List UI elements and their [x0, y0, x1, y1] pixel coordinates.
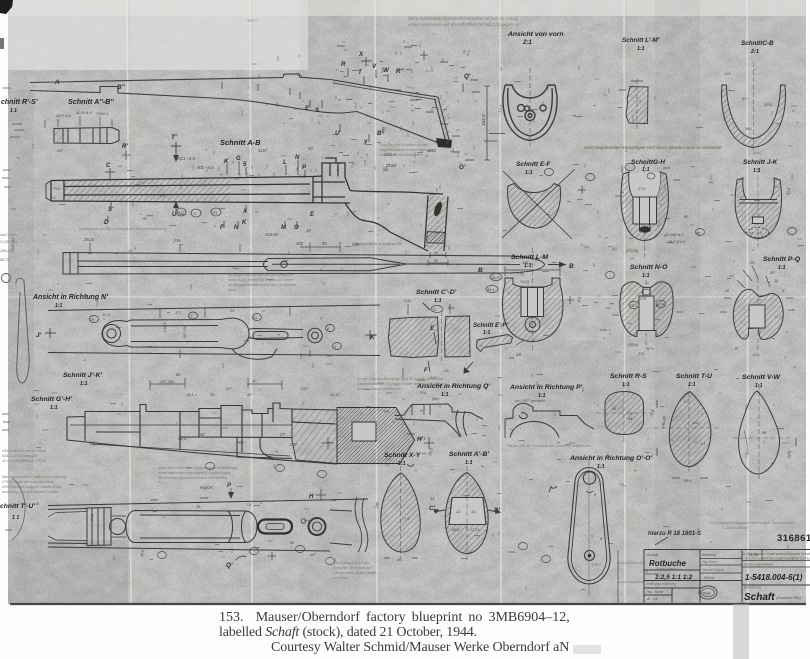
svg-text:(8,75: (8,75	[656, 303, 666, 307]
svg-text:,7,5): ,7,5)	[516, 272, 524, 276]
svg-text:A: A	[54, 79, 60, 86]
svg-text:153,46: 153,46	[265, 232, 278, 237]
svg-text:Schnitt C'-D': Schnitt C'-D'	[416, 289, 457, 296]
svg-text:A 14: A 14	[646, 596, 658, 601]
svg-text:78.5: 78.5	[630, 304, 638, 308]
svg-text:1 1: 1 1	[10, 108, 17, 114]
svg-text:Zwischen Hulse und Kastenmanla: Zwischen Hulse und Kastenmanlarverbindun…	[157, 466, 237, 470]
svg-text:Gepruft Erganz: Gepruft Erganz	[702, 568, 725, 572]
svg-text:517: 517	[178, 210, 185, 215]
svg-text:41: 41	[213, 210, 218, 215]
svg-text:27.6: 27.6	[637, 187, 646, 191]
svg-text:15: 15	[516, 352, 522, 357]
svg-text:X: X	[358, 51, 364, 58]
svg-text:8°: 8°	[735, 347, 739, 351]
svg-text:(9): (9)	[612, 247, 617, 251]
svg-text:Lehrgummis radius weiter: Lehrgummis radius weiter	[333, 571, 377, 575]
svg-text:40': 40'	[247, 393, 252, 397]
svg-text:Vorstoff: Vorstoff	[646, 553, 659, 557]
svg-text:1756 m orps ert mansabst holz: 1756 m orps ert mansabst holz	[2, 480, 54, 484]
svg-text:80: 80	[434, 251, 438, 255]
svg-text:1157: 1157	[258, 148, 268, 153]
svg-text:R': R'	[122, 144, 128, 150]
svg-text:1:1: 1:1	[753, 168, 761, 174]
svg-text:1:1: 1:1	[525, 170, 533, 176]
svg-text:Ansicht in Richtung N': Ansicht in Richtung N'	[32, 294, 108, 301]
svg-text:247: 247	[289, 442, 298, 447]
svg-text:Symmetrie bezuglich-Ebauf die: Symmetrie bezuglich-Ebauf die Kutzenkinl…	[79, 226, 168, 231]
svg-text:1:1: 1:1	[465, 460, 473, 466]
svg-text:27: 27	[279, 432, 285, 437]
svg-text:Flache mit der Rundung des Sch: Flache mit der Rundung des Schaftes verg…	[507, 444, 591, 448]
svg-text:1:1: 1:1	[441, 392, 449, 398]
svg-text:Tag Name: Tag Name	[702, 560, 717, 564]
svg-text:1:1: 1:1	[597, 464, 605, 470]
svg-text:19: 19	[306, 228, 311, 233]
svg-text:2183: 2183	[385, 163, 397, 168]
svg-text:Mais askreuzteil u gleichzeit: Mais askreuzteil u gleichzeit messung	[2, 475, 67, 479]
svg-text:27±: 27±	[637, 352, 644, 356]
svg-text:52: 52	[200, 432, 205, 437]
svg-text:die Zeichnungsmasse hinaus erf: die Zeichnungsmasse hinaus erforderlich	[158, 476, 227, 480]
svg-text:Schnitt G'-H': Schnitt G'-H'	[31, 396, 72, 403]
svg-text:(39,4): (39,4)	[628, 343, 639, 347]
svg-text:WaA: WaA	[703, 592, 711, 596]
svg-text:3.1: 3.1	[700, 442, 705, 446]
svg-text:werte sind oben und unten(3) Z: werte sind oben und unten(3) Zugbk s ube…	[158, 471, 231, 475]
svg-text:1:1: 1:1	[622, 382, 630, 388]
svg-text:13,24: 13,24	[470, 528, 480, 532]
svg-text:37 - 4,5: 37 - 4,5	[749, 232, 763, 236]
svg-text:Ansicht in Richtung P': Ansicht in Richtung P'	[509, 384, 583, 391]
svg-text:95: 95	[434, 259, 438, 263]
svg-text:Schnitt X-Y: Schnitt X-Y	[384, 452, 422, 459]
svg-text:R'': R''	[396, 68, 404, 75]
svg-text:G: G	[236, 156, 241, 162]
svg-text:155,5 weitere wand mittell: 155,5 weitere wand mittell	[2, 449, 46, 453]
svg-text:2268 weszen spiel der kasten u: 2268 weszen spiel der kasten u der	[1, 485, 62, 489]
svg-text:Benennung: Benennung	[744, 586, 761, 590]
svg-text:157,764: 157,764	[160, 380, 174, 384]
svg-text:6341 u 2 bichung 20: 6341 u 2 bichung 20	[2, 454, 37, 458]
svg-text:45,1: 45,1	[418, 437, 425, 441]
svg-text:Schnitt J-K: Schnitt J-K	[743, 159, 779, 166]
svg-text:Tag...Name: Tag...Name	[646, 590, 664, 594]
svg-text:1:1: 1:1	[434, 298, 442, 304]
svg-text:12 u 4 werzährung 155,35: 12 u 4 werzährung 155,35	[2, 459, 47, 463]
svg-text:Schnitt A-B: Schnitt A-B	[220, 138, 261, 147]
svg-text:18,1: 18,1	[186, 393, 193, 397]
svg-text:B': B'	[377, 130, 383, 137]
svg-text:Anleitung: Anleitung	[701, 553, 716, 557]
svg-text:U: U	[335, 130, 340, 137]
svg-text:SchnittC-B: SchnittC-B	[741, 40, 774, 47]
svg-text:um 180° gedreht: um 180° gedreht	[515, 398, 546, 403]
svg-text:7,8: 7,8	[246, 503, 252, 507]
svg-text:O': O'	[459, 164, 466, 171]
svg-text:(5a): (5a)	[432, 397, 439, 401]
svg-text:Schnitt L'-M': Schnitt L'-M'	[622, 37, 660, 44]
svg-text:- 10,5: - 10,5	[100, 313, 111, 317]
svg-text:-247: -247	[300, 387, 308, 391]
svg-text:mA2- 14,3: mA2- 14,3	[0, 233, 17, 237]
svg-text:1:1: 1:1	[637, 46, 645, 52]
svg-text:1,5±: 1,5±	[404, 299, 411, 303]
svg-text:reuze gegenlaufen dann Lauf vo: reuze gegenlaufen dann Lauf vorhanden	[228, 283, 296, 287]
svg-text:307,64: 307,64	[183, 326, 187, 338]
svg-text:Anderungs mitteilung: Anderungs mitteilung	[645, 582, 676, 586]
svg-text:# 32 # Masse u Rund geand Ube: # 32 # Masse u Rund geand Ubersetz Schaf…	[743, 552, 810, 556]
svg-text:mgrO<: mgrO<	[200, 485, 213, 490]
svg-text:An der Kreuzteulaufdinge sind: An der Kreuzteulaufdinge sind 69 Zugbk u…	[356, 377, 444, 381]
svg-text:360: 360	[745, 127, 752, 131]
svg-text:1:1: 1:1	[80, 381, 88, 387]
svg-text:Werkst: Werkst	[704, 576, 716, 580]
svg-text:45°: 45°	[310, 553, 316, 557]
svg-text:T': T'	[171, 134, 177, 141]
svg-text:B'': B''	[117, 84, 125, 91]
svg-text:8±: 8±	[290, 541, 294, 545]
svg-text:354: 354	[522, 261, 528, 265]
svg-text:y: y	[363, 138, 368, 145]
svg-text:zu halten: zu halten	[332, 576, 348, 580]
svg-text:25°: 25°	[56, 148, 63, 153]
svg-text:Im langen konischen Teil die S: Im langen konischen Teil die Seelhohe	[228, 273, 293, 277]
svg-text:316861: 316861	[777, 533, 810, 544]
svg-text:B8711: B8711	[0, 258, 10, 262]
svg-text:muss e auf jeden Fall le alles: muss e auf jeden Fall le alles 64 Tavel …	[228, 278, 294, 282]
svg-text:94: 94	[430, 497, 434, 501]
svg-text:1:1: 1:1	[778, 265, 786, 271]
svg-text:Ansicht von vorn: Ansicht von vorn	[507, 31, 564, 38]
svg-text:Die Einfugung fur den: Die Einfugung fur den	[333, 561, 370, 565]
svg-text:4,2: 4,2	[729, 274, 735, 278]
svg-text:B: B	[569, 263, 574, 270]
svg-text:Schnitt A'-B': Schnitt A'-B'	[449, 451, 489, 458]
svg-text:52+: 52+	[742, 97, 749, 101]
svg-text:Zeichnungsnummer: Zeichnungsnummer	[743, 563, 774, 567]
svg-text:N: N	[295, 155, 300, 161]
svg-text:Kern Liefbed: Kern Liefbed	[657, 568, 676, 572]
svg-text:Schaft: Schaft	[744, 592, 775, 603]
svg-text:74±: 74±	[174, 238, 182, 243]
svg-text:chnitt T'-U': chnitt T'-U'	[0, 503, 35, 510]
svg-text:7,5: 7,5	[404, 517, 410, 521]
svg-text:-47±: -47±	[752, 353, 760, 357]
svg-text:4264: 4264	[591, 562, 601, 567]
svg-text:Kreuzteil der Hulse auf: Kreuzteil der Hulse auf	[333, 566, 372, 570]
svg-text:Holzgewinde 6 lang auf 50: Holzgewinde 6 lang auf 50	[355, 241, 403, 246]
svg-text:34: 34	[196, 505, 200, 509]
svg-text:42,5+4.4: 42,5+4.4	[76, 110, 92, 115]
svg-text:1:1: 1:1	[483, 330, 490, 336]
svg-text:-26: -26	[749, 261, 755, 265]
svg-text:400: 400	[296, 241, 304, 246]
svg-text:2013 +4.5: 2013 +4.5	[175, 156, 195, 161]
svg-text:16,78: 16,78	[491, 276, 501, 280]
svg-text:30°±: 30°±	[646, 347, 654, 351]
svg-text:J': J'	[36, 332, 42, 339]
svg-text:G': G'	[420, 408, 424, 413]
svg-text:4g: 4g	[696, 231, 700, 235]
svg-text:60±: 60±	[448, 306, 454, 310]
svg-text:(12.68)+4.5: (12.68)+4.5	[664, 233, 684, 237]
svg-text:Schnitt A''-B'': Schnitt A''-B''	[68, 97, 114, 106]
svg-text:Gute Liefbed: Gute Liefbed	[726, 526, 749, 530]
svg-text:900 +4.4: 900 +4.4	[197, 165, 214, 170]
svg-text:14,4: 14,4	[178, 436, 187, 441]
svg-text:1:2,5 1:1 1:2: 1:2,5 1:1 1:2	[655, 574, 693, 581]
svg-text:5.6: 5.6	[55, 187, 61, 191]
svg-text:60,5: 60,5	[452, 528, 460, 532]
svg-text:(Karabiner 98k): (Karabiner 98k)	[776, 596, 801, 600]
svg-text:9.: 9.	[36, 501, 40, 506]
svg-text:+2,5): +2,5)	[520, 280, 529, 284]
svg-text:Schnitt E-F: Schnitt E-F	[516, 161, 551, 168]
svg-text:Schnitt P-Q: Schnitt P-Q	[763, 256, 801, 263]
svg-text:6: 6	[327, 327, 329, 331]
svg-text:Q': Q'	[464, 73, 471, 80]
svg-text:11: 11	[725, 289, 729, 293]
svg-text:36,8 )+4.5: 36,8 )+4.5	[668, 240, 686, 244]
svg-text:37a: 37a	[420, 391, 426, 395]
svg-text:Schnitt V-W: Schnitt V-W	[742, 374, 780, 381]
svg-text:3211: 3211	[764, 103, 772, 107]
svg-text:1:1: 1:1	[55, 303, 62, 309]
svg-text:147: 147	[225, 387, 232, 391]
svg-text:3: 3	[334, 345, 336, 349]
svg-text:24: 24	[229, 309, 234, 313]
svg-text:1-5418.004-6(1): 1-5418.004-6(1)	[745, 573, 803, 582]
svg-text:12,: 12,	[471, 510, 476, 514]
svg-text:2:1: 2:1	[750, 49, 759, 55]
svg-text:1:1: 1:1	[398, 461, 406, 467]
svg-text:114: 114	[692, 421, 698, 425]
svg-text:176: 176	[640, 297, 647, 301]
svg-text:88,5: 88,5	[684, 479, 692, 483]
svg-text:-46-: -46-	[396, 558, 403, 562]
svg-text:nicht tangierenden Kreuzungen: nicht tangierenden Kreuzungen sind durch…	[584, 145, 722, 150]
svg-text:600: 600	[428, 148, 436, 153]
svg-text:K: K	[242, 220, 247, 226]
svg-text:unters haltendarlei auf Bleist: unters haltendarlei auf Bleistiftzahlen …	[408, 22, 520, 27]
svg-text:34,5: 34,5	[90, 513, 95, 522]
svg-text:2007+: 2007+	[246, 19, 258, 23]
svg-text:RLJmpragnierungsamt und Flugga: RLJmpragnierungsamt und Flugga-Tiel beme…	[711, 521, 795, 525]
svg-text:Schnitt J'-K': Schnitt J'-K'	[63, 372, 102, 379]
svg-text:Werte habenderle sind mit Blei: Werte habenderle sind mit Bleistiftzahle…	[408, 16, 519, 21]
svg-text:allseitig bis 60 verstarken: allseitig bis 60 verstarken	[380, 153, 421, 157]
svg-text:29: 29	[90, 318, 94, 322]
svg-text:50: 50	[322, 241, 327, 246]
svg-text:-0,5: -0,5	[724, 72, 731, 76]
svg-text:44: 44	[628, 417, 632, 421]
svg-text:1:1: 1:1	[50, 405, 58, 411]
svg-text:2:1: 2:1	[522, 40, 532, 46]
svg-text:Das Teil des Schaftes auf bei: Das Teil des Schaftes auf bei	[380, 143, 428, 147]
svg-text:4°: 4°	[782, 289, 786, 293]
svg-text:34,5: 34,5	[140, 549, 145, 558]
svg-text:Ansicht in Richtung Q': Ansicht in Richtung Q'	[416, 383, 490, 390]
svg-text:39,4: 39,4	[487, 288, 494, 292]
svg-text:20°: 20°	[769, 271, 776, 275]
svg-text:Schnitt T-U: Schnitt T-U	[676, 373, 713, 380]
svg-text:12-12: 12-12	[330, 393, 341, 397]
svg-text:-7a: -7a	[443, 369, 449, 373]
svg-text:Q': Q'	[226, 562, 233, 569]
svg-text:1 1: 1 1	[12, 515, 19, 521]
svg-text:1: 1	[190, 314, 192, 318]
svg-text:218,9: 218,9	[163, 322, 167, 333]
svg-text:masse hinaus erforderlich: masse hinaus erforderlich	[357, 387, 400, 391]
svg-text:B: B	[478, 267, 483, 274]
svg-text:F: F	[424, 368, 428, 374]
svg-text:SchnittG-H: SchnittG-H	[631, 159, 665, 166]
svg-text:R u T-U u Bohrung zugef Rundg: R u T-U u Bohrung zugef Rundgeld (157±)	[746, 557, 810, 561]
svg-text:Schnitt E'-F': Schnitt E'-F'	[473, 323, 508, 329]
svg-text:495: 495	[352, 242, 360, 247]
svg-text:Schnitt N-O: Schnitt N-O	[630, 264, 668, 271]
svg-text:- 202 -: - 202 -	[234, 440, 247, 445]
svg-text:50: 50	[308, 146, 313, 151]
svg-text:1:1: 1:1	[642, 167, 650, 173]
svg-text:chnitt R'-S': chnitt R'-S'	[1, 99, 38, 106]
svg-text:bann: bann	[228, 288, 236, 292]
svg-text:28,2±: 28,2±	[83, 237, 95, 242]
svg-text:70±0.1: 70±0.1	[96, 111, 108, 116]
svg-text:1:1: 1:1	[642, 273, 650, 279]
svg-text:(27/16): (27/16)	[626, 249, 639, 253]
svg-text:Ansicht in Richtung O'-O': Ansicht in Richtung O'-O'	[569, 455, 653, 462]
svg-text:-6-: -6-	[252, 379, 257, 383]
svg-text:23: 23	[253, 316, 257, 320]
svg-text:71: 71	[432, 308, 436, 312]
svg-text:288,44: 288,44	[10, 237, 15, 250]
svg-text:437+4.4: 437+4.4	[56, 113, 71, 118]
svg-text:R: R	[341, 61, 346, 68]
svg-text:F: F	[220, 225, 224, 231]
svg-text:K: K	[224, 159, 229, 165]
svg-text:H: H	[309, 494, 314, 500]
svg-text:O: O	[294, 225, 299, 231]
svg-text:angewachsener Kolbenlage: angewachsener Kolbenlage	[380, 148, 426, 152]
svg-text:hierzu R 18 1801-S: hierzu R 18 1801-S	[648, 531, 701, 537]
svg-text:177: 177	[175, 311, 182, 315]
svg-text:Schnitt L-M: Schnitt L-M	[511, 254, 548, 261]
svg-text:Schnitt R-S: Schnitt R-S	[610, 373, 647, 380]
svg-text:162,6: 162,6	[481, 114, 486, 126]
svg-text:werkzeug jelzrech fernerst wie: werkzeug jelzrech fernerst wieder	[2, 490, 59, 494]
